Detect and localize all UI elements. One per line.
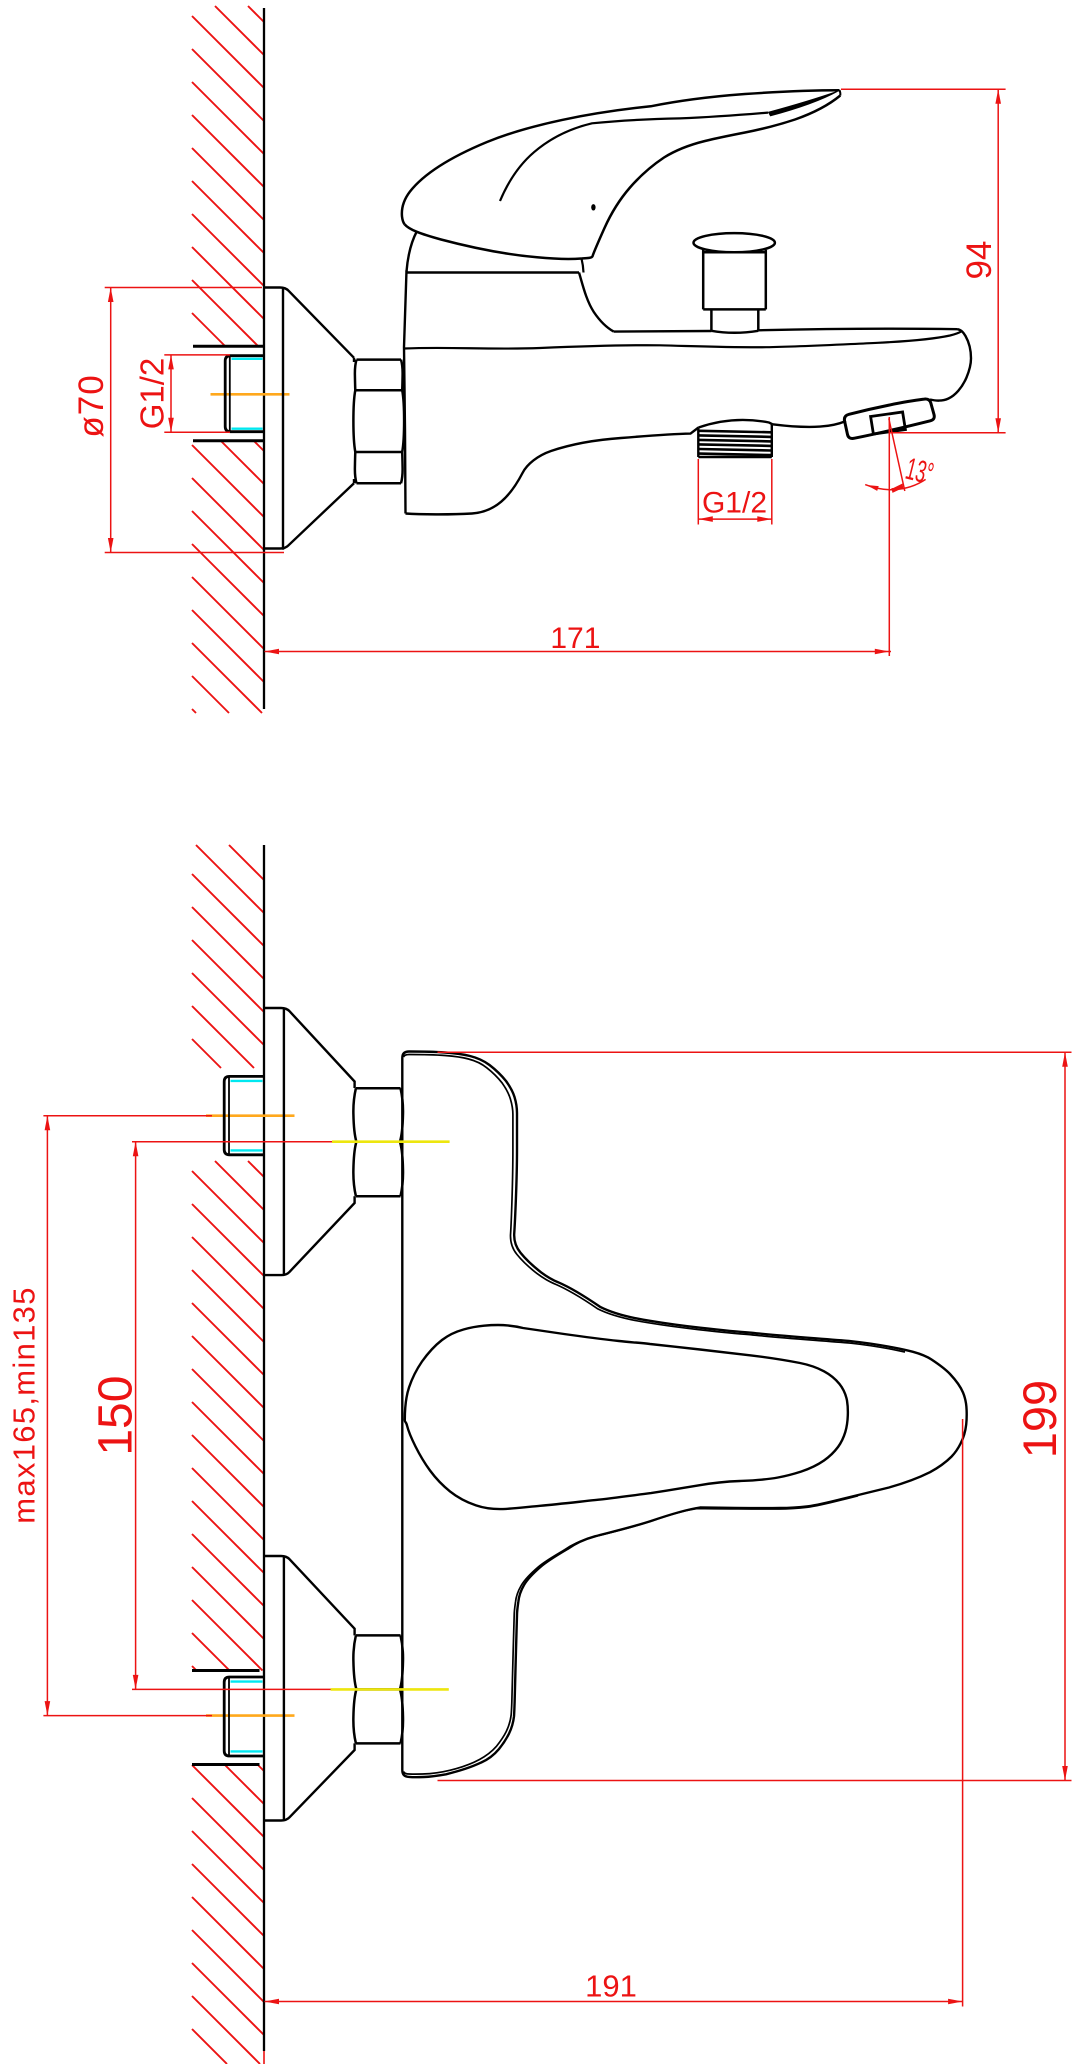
svg-text:ø70: ø70 [72,374,111,437]
svg-text:max165,min135: max165,min135 [7,1286,42,1523]
svg-text:150: 150 [90,1376,143,1456]
svg-text:199: 199 [1013,1380,1066,1458]
svg-text:G1/2: G1/2 [134,358,171,430]
svg-text:191: 191 [585,1969,637,2004]
svg-text:G1/2: G1/2 [702,487,767,520]
svg-text:94: 94 [960,241,999,280]
svg-text:171: 171 [550,622,600,655]
